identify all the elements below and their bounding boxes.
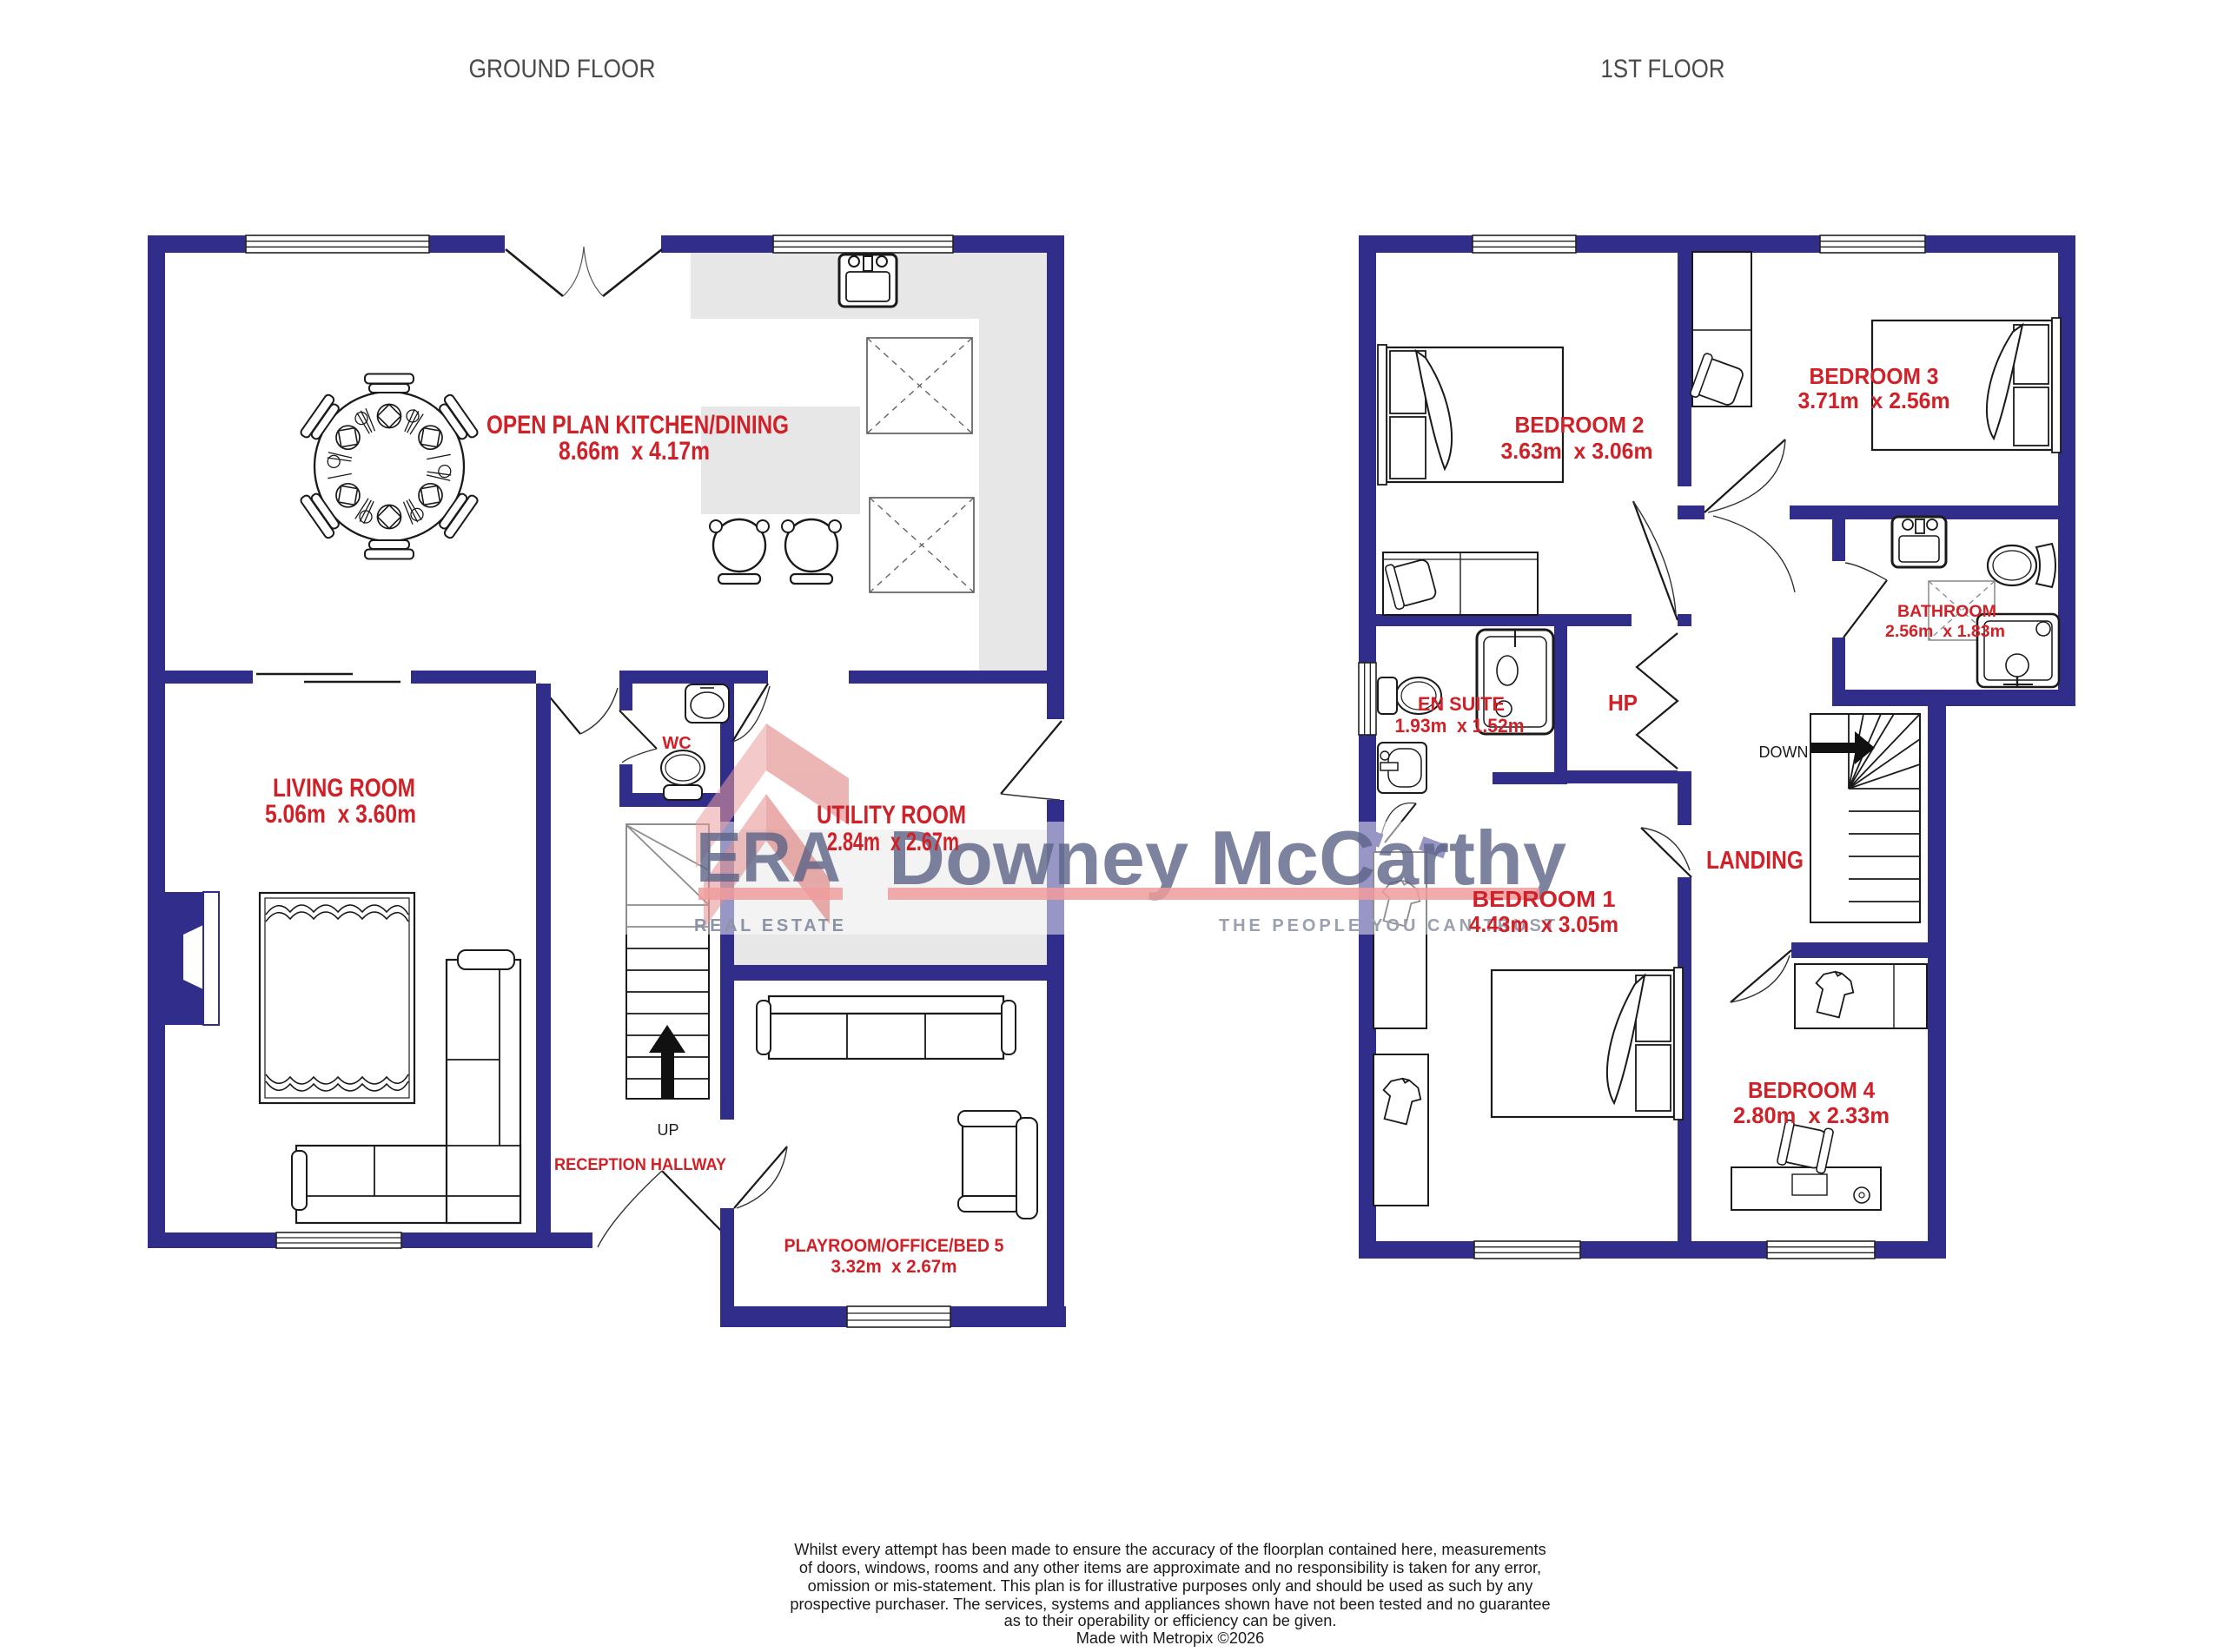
svg-text:prospective purchaser. The ser: prospective purchaser. The services, sys… — [790, 1596, 1550, 1613]
svg-text:BEDROOM 1: BEDROOM 1 — [1473, 886, 1616, 912]
svg-text:of doors, windows, rooms and a: of doors, windows, rooms and any other i… — [799, 1559, 1541, 1576]
svg-text:2.56m x 1.83m: 2.56m x 1.83m — [1885, 623, 2005, 641]
svg-text:2.80m x 2.33m: 2.80m x 2.33m — [1733, 1102, 1890, 1128]
svg-text:BEDROOM 4: BEDROOM 4 — [1748, 1077, 1875, 1103]
svg-text:8.66m x 4.17m: 8.66m x 4.17m — [559, 437, 710, 466]
svg-text:RECEPTION HALLWAY: RECEPTION HALLWAY — [554, 1156, 726, 1174]
svg-text:BEDROOM 2: BEDROOM 2 — [1515, 412, 1645, 438]
svg-text:Whilst every attempt has been: Whilst every attempt has been made to en… — [794, 1541, 1546, 1558]
svg-text:DOWN: DOWN — [1759, 743, 1809, 761]
svg-text:REAL ESTATE: REAL ESTATE — [694, 916, 844, 935]
svg-text:UP: UP — [657, 1121, 678, 1139]
svg-text:1.93m x 1.52m: 1.93m x 1.52m — [1395, 715, 1525, 737]
svg-text:LANDING: LANDING — [1706, 847, 1804, 875]
svg-text:GROUND FLOOR: GROUND FLOOR — [469, 55, 656, 83]
svg-text:3.63m x 3.06m: 3.63m x 3.06m — [1501, 438, 1653, 464]
svg-text:UTILITY ROOM: UTILITY ROOM — [817, 801, 966, 829]
svg-text:omission or mis-statement. Thi: omission or mis-statement. This plan is … — [808, 1577, 1534, 1595]
svg-text:OPEN PLAN KITCHEN/DINING: OPEN PLAN KITCHEN/DINING — [486, 411, 789, 439]
svg-text:LIVING ROOM: LIVING ROOM — [273, 774, 415, 803]
svg-text:3.32m x 2.67m: 3.32m x 2.67m — [831, 1257, 957, 1277]
svg-text:as to their operability or eff: as to their operability or efficiency ca… — [1004, 1612, 1337, 1629]
svg-text:EN SUITE: EN SUITE — [1418, 693, 1505, 715]
svg-text:HP: HP — [1608, 690, 1638, 716]
svg-text:5.06m x 3.60m: 5.06m x 3.60m — [265, 800, 416, 829]
svg-text:3.71m x 2.56m: 3.71m x 2.56m — [1798, 387, 1950, 413]
svg-text:1ST FLOOR: 1ST FLOOR — [1601, 55, 1725, 83]
svg-text:WC: WC — [662, 734, 691, 753]
svg-text:BATHROOM: BATHROOM — [1897, 603, 1996, 621]
svg-text:ERA: ERA — [696, 818, 841, 897]
svg-text:2.84m x 2.67m: 2.84m x 2.67m — [827, 828, 959, 856]
svg-text:Made with Metropix ©2026: Made with Metropix ©2026 — [1076, 1629, 1265, 1647]
svg-text:4.43m x 3.05m: 4.43m x 3.05m — [1469, 911, 1618, 937]
svg-text:PLAYROOM/OFFICE/BED 5: PLAYROOM/OFFICE/BED 5 — [784, 1236, 1004, 1256]
svg-text:BEDROOM 3: BEDROOM 3 — [1810, 363, 1939, 389]
